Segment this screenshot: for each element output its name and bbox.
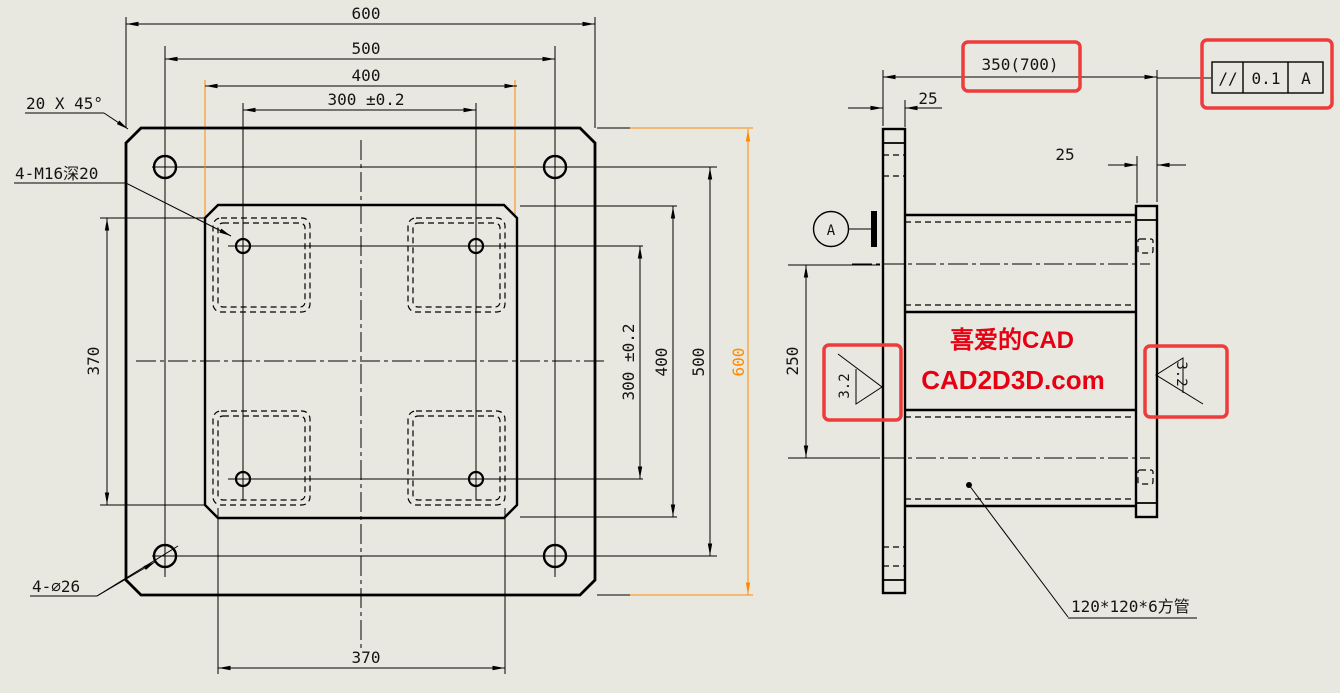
front-view-dimensions: 600 500 400 300 ±0.2 300 ±0.2 400 500 60… [84, 4, 748, 668]
highlight-boxes [824, 40, 1332, 420]
watermark: 喜爱的CAD CAD2D3D.com [921, 326, 1105, 395]
dim-right-500[interactable]: 500 [689, 348, 708, 377]
fcf-datum-ref: A [1301, 69, 1311, 88]
cad-drawing-page: 600 500 400 300 ±0.2 300 ±0.2 400 500 60… [0, 0, 1340, 693]
watermark-line2: CAD2D3D.com [921, 365, 1105, 395]
tube-hidden-outline [218, 416, 305, 500]
watermark-line1: 喜爱的CAD [950, 326, 1074, 354]
datum-feature-symbol[interactable]: A [814, 211, 878, 247]
dim-top-300[interactable]: 300 ±0.2 [327, 90, 404, 109]
drawing-canvas[interactable]: 600 500 400 300 ±0.2 300 ±0.2 400 500 60… [0, 0, 1340, 693]
datum-label: A [827, 223, 836, 239]
front-view-notes: 20 X 45° 4-M16深20 4-∅26 [14, 94, 231, 596]
dim-bottom-370[interactable]: 370 [352, 648, 381, 667]
chamfer-note[interactable]: 20 X 45° [26, 94, 103, 113]
roughness-left-value: 3.2 [837, 373, 853, 398]
tube-hidden-outline [213, 218, 310, 312]
datum-triangle [871, 211, 877, 247]
front-view-geometry [100, 17, 753, 674]
dim-flange-left[interactable]: 25 [918, 89, 937, 108]
tapped-hole-hidden [1138, 239, 1153, 253]
tube-size-note[interactable]: 120*120*6方管 [966, 482, 1197, 618]
highlight-box-roughness-left [824, 345, 901, 420]
dim-right-300[interactable]: 300 ±0.2 [619, 323, 638, 400]
side-view-geometry [852, 129, 1157, 593]
tube-hidden-outline [213, 411, 310, 505]
dim-left-370[interactable]: 370 [84, 347, 103, 376]
fcf-parallelism-symbol: // [1218, 69, 1237, 88]
dim-right-400[interactable]: 400 [652, 348, 671, 377]
roughness-right-value: 3.2 [1173, 361, 1189, 386]
tube-hidden-outline [413, 223, 500, 307]
tube-hidden-outline [413, 416, 500, 500]
fcf-frame[interactable]: // 0.1 A [1157, 62, 1323, 93]
tapped-holes-note[interactable]: 4-M16深20 [15, 164, 98, 183]
tube-hidden-outline [408, 218, 505, 312]
dim-top-600[interactable]: 600 [352, 4, 381, 23]
tube-hidden-outline [408, 411, 505, 505]
dim-flange-right[interactable]: 25 [1055, 145, 1074, 164]
dim-right-600-selected[interactable]: 600 [729, 129, 748, 595]
dim-right-600: 600 [729, 348, 748, 377]
dim-top-400[interactable]: 400 [352, 66, 381, 85]
through-holes-note[interactable]: 4-∅26 [32, 577, 80, 596]
dim-top-500[interactable]: 500 [352, 39, 381, 58]
fcf-tolerance-value: 0.1 [1252, 69, 1281, 88]
surface-roughness-right[interactable]: 3.2 [1156, 358, 1203, 404]
dim-length[interactable]: 350(700) [981, 55, 1058, 74]
tube-note-text: 120*120*6方管 [1071, 597, 1190, 616]
tapped-holes [236, 239, 483, 486]
surface-roughness-left[interactable]: 3.2 [837, 354, 882, 404]
dim-tube-spacing[interactable]: 250 [783, 347, 802, 376]
tapped-hole-hidden [1138, 470, 1153, 484]
